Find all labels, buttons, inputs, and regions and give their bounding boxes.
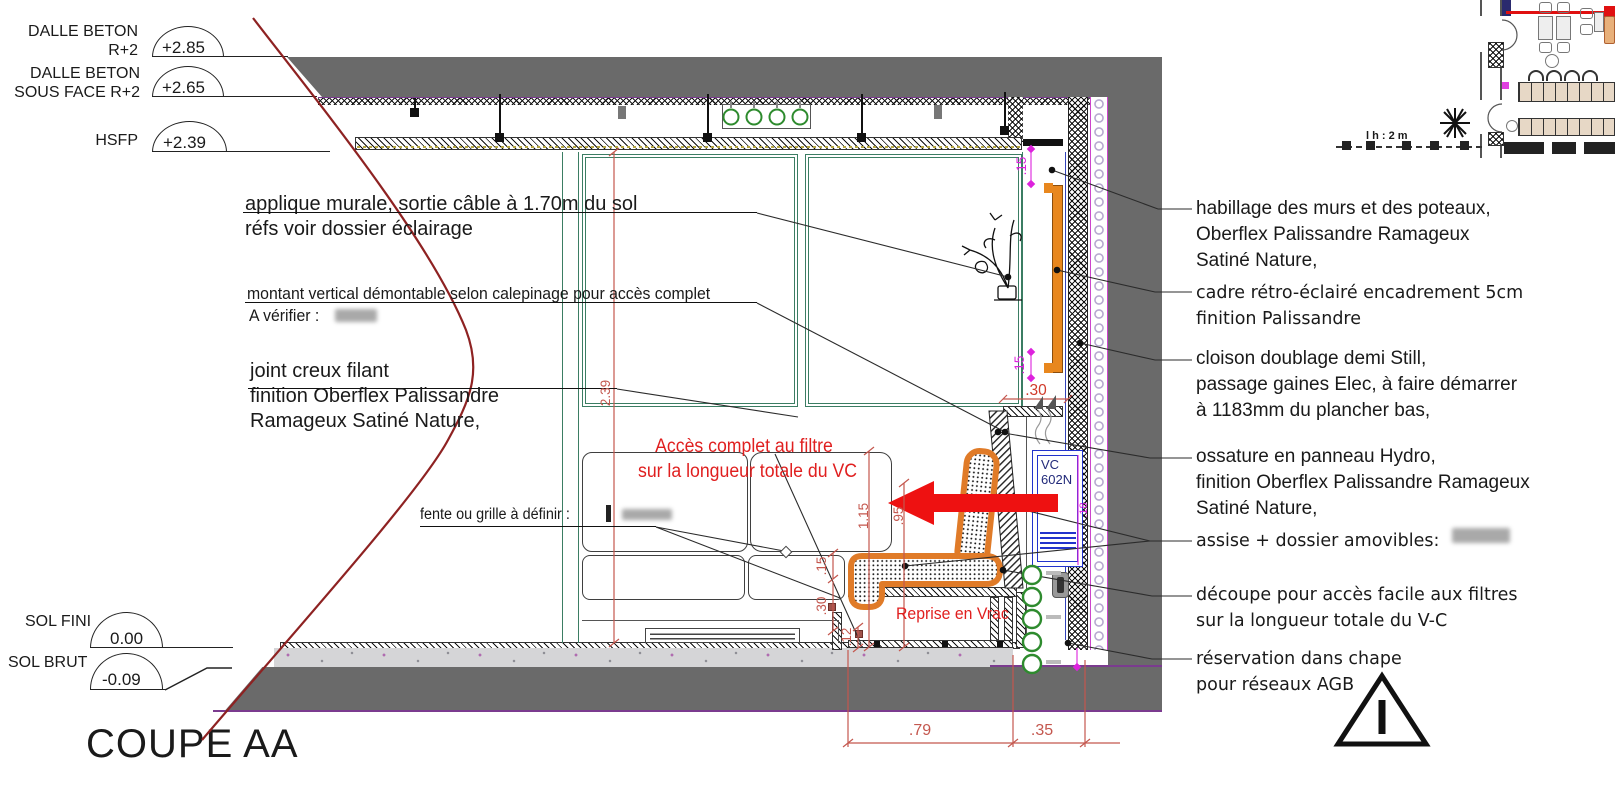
floor-slab: [220, 667, 1162, 712]
slab-recess-line: [990, 665, 1162, 667]
note-verifier: A vérifier :: [249, 306, 319, 326]
note-line: Oberflex Palissandre Ramageux: [1196, 222, 1491, 248]
level-line-hsfp: [152, 151, 330, 152]
inset-chair: [1580, 24, 1593, 35]
wall-line: [578, 152, 579, 643]
ceiling-hanger: [861, 94, 863, 135]
inset-plant-pot: [1604, 16, 1615, 44]
ceiling-hanger: [857, 133, 866, 142]
fixing-block: [828, 603, 836, 611]
redacted-text: [622, 509, 672, 520]
note-reservation: réservation dans chape pour réseaux AGB: [1196, 646, 1402, 698]
stud-line: [1026, 410, 1027, 648]
wall-stub-above-niche: [1008, 97, 1023, 142]
ventilation-duct-box: [722, 104, 811, 129]
seat-board: [848, 587, 1017, 597]
level-value: +2.65: [162, 78, 205, 98]
note-montant-line1: montant vertical démontable selon calepi…: [247, 284, 710, 304]
dim-wall-offset: .35: [1022, 722, 1062, 740]
backrest-cushion: [956, 450, 998, 567]
backrest-support: [989, 411, 1023, 588]
floor-level-label: SOL FINI: [25, 612, 91, 631]
backlit-frame-bracket: [1044, 183, 1053, 193]
level-line: SOUS FACE R+2: [0, 83, 140, 102]
fixing-square: [874, 641, 880, 647]
inset-round-table: [1545, 54, 1559, 68]
note-joint-line3: Ramageux Satiné Nature,: [250, 409, 480, 434]
bench-grille: [645, 628, 800, 643]
base-post: [1016, 592, 1026, 648]
plinth-line: [582, 620, 838, 621]
bench-front-panel: [582, 555, 745, 600]
level-line-265: [152, 96, 317, 97]
inset-banquette-row: [1518, 118, 1615, 136]
vc-label-line2: 602N: [1041, 472, 1072, 487]
note-fente: fente ou grille à définir :: [420, 506, 570, 524]
level-line-285: [152, 56, 288, 57]
redacted-text: [1452, 528, 1510, 543]
backlit-frame-bracket: [1044, 363, 1053, 373]
dim-plinth-height: .12: [839, 619, 853, 655]
note-line: sur la longueur totale du V-C: [1196, 608, 1518, 634]
dim-niche-depth: .30: [1018, 382, 1054, 400]
ceiling-hanger: [703, 133, 712, 142]
sol-brut-connector: [165, 668, 232, 690]
ceiling-hanger: [1000, 126, 1009, 135]
level-label: DALLE BETON R+2: [20, 22, 138, 60]
ceiling-hanger: [499, 94, 501, 135]
wall-insulation-honeycomb: [1090, 97, 1108, 650]
pipe-label-smudge: [1046, 660, 1061, 664]
ceiling-hanger: [495, 133, 504, 142]
level-value: +2.85: [162, 38, 205, 58]
coupe-aa-section-drawing: DALLE BETON R+2 +2.85 DALLE BETON SOUS F…: [0, 0, 1615, 788]
vc-label-line1: VC: [1041, 457, 1072, 472]
note-line: finition Palissandre: [1196, 306, 1523, 332]
note-line: cloison doublage demi Still,: [1196, 346, 1517, 372]
dim-vc-width: .18: [1078, 492, 1092, 528]
inset-wall-block: [1488, 132, 1504, 146]
note-line: Satiné Nature,: [1196, 496, 1530, 522]
note-applique-line2: réfs voir dossier éclairage: [245, 217, 473, 242]
ceiling-seal-line: [357, 146, 1020, 148]
inset-chair: [1539, 42, 1552, 53]
inset-table: [1556, 16, 1571, 40]
dim-panel-height: 2.39: [598, 375, 612, 411]
seat-cushion: [851, 556, 1000, 607]
floor-level-value: -0.09: [102, 670, 141, 690]
inset-wall-block: [1488, 42, 1504, 68]
inset-wall-notch: [1576, 142, 1584, 154]
backlit-frame-fixture: [1052, 185, 1063, 373]
note-line: réservation dans chape: [1196, 646, 1402, 672]
note-line: finition Oberflex Palissandre Ramageux: [1196, 470, 1530, 496]
page-title: COUPE AA: [86, 722, 299, 767]
filter-access-line1: Accès complet au filtre: [638, 434, 850, 459]
note-line: habillage des murs et des poteaux,: [1196, 196, 1491, 222]
redacted-text: [335, 309, 377, 322]
inset-post: [1366, 141, 1375, 150]
note-ossature: ossature en panneau Hydro, finition Ober…: [1196, 444, 1530, 522]
niche-sill: [1003, 406, 1063, 417]
note-cadre: cadre rétro-éclairé encadrement 5cm fini…: [1196, 280, 1523, 332]
right-wall: [1108, 96, 1162, 667]
vc-unit-label: VC 602N: [1041, 457, 1072, 487]
level-line: DALLE BETON: [0, 64, 140, 83]
inset-chairback: [1564, 70, 1580, 81]
level-line: R+2: [20, 41, 138, 60]
suspended-ceiling: [355, 137, 1022, 150]
wall-insulation-crosshatch: [1068, 97, 1088, 650]
inset-round-symbol: [1506, 120, 1518, 132]
floor-level-label: SOL BRUT: [8, 653, 87, 672]
inset-post: [1402, 141, 1411, 150]
note-reprise: Reprise en Vrac: [896, 604, 1009, 624]
base-plate: [848, 640, 1013, 648]
inset-banquette-row: [1518, 82, 1615, 102]
note-joint-line1: joint creux filant: [250, 359, 389, 384]
note-line: pour réseaux AGB: [1196, 672, 1402, 698]
note-underline: [420, 526, 656, 527]
wall-line: [562, 152, 563, 643]
fixing-square: [942, 641, 948, 647]
dim-seat-height: .95: [891, 498, 905, 534]
vc-coil: [1040, 532, 1076, 552]
pipe-fitting-core: [1057, 577, 1064, 593]
level-label: HSFP: [60, 131, 138, 150]
level-line: DALLE BETON: [20, 22, 138, 41]
level-value: +2.39: [163, 133, 206, 153]
dim-slot-gap: .15: [814, 548, 828, 584]
dim-niche-gap: .15: [1012, 347, 1026, 383]
inset-post: [1460, 141, 1469, 150]
note-applique-line1: applique murale, sortie câble à 1.70m du…: [245, 192, 637, 217]
inset-chair: [1557, 42, 1570, 53]
inset-post: [1430, 141, 1439, 150]
pipe-label-smudge: [1046, 615, 1061, 619]
note-cloison: cloison doublage demi Still, passage gai…: [1196, 346, 1517, 424]
note-joint-line2: finition Oberflex Palissandre: [250, 384, 499, 409]
note-filter-access: Accès complet au filtre sur la longueur …: [638, 434, 850, 484]
note-line: cadre rétro-éclairé encadrement 5cm: [1196, 280, 1523, 306]
note-habillage: habillage des murs et des poteaux, Oberf…: [1196, 196, 1491, 274]
note-assise: assise + dossier amovibles:: [1196, 528, 1439, 554]
note-line: ossature en panneau Hydro,: [1196, 444, 1530, 470]
fixing-square: [997, 641, 1003, 647]
ceiling-hanger: [1004, 92, 1006, 130]
bench-front-panel: [748, 555, 845, 600]
level-label: DALLE BETON SOUS FACE R+2: [0, 64, 140, 102]
sol-brut-line: [90, 689, 166, 690]
note-line: Satiné Nature,: [1196, 248, 1491, 274]
dim-base-height: .30: [814, 588, 828, 624]
dim-bench-depth: .79: [898, 722, 942, 740]
note-line: passage gaines Elec, à faire démarrer: [1196, 372, 1517, 398]
inset-chairback: [1528, 70, 1544, 81]
inset-chairback: [1582, 70, 1598, 81]
niche-lintel: [1023, 139, 1063, 146]
note-underline: [243, 212, 757, 213]
inset-chair: [1557, 2, 1570, 13]
inset-pink-mark: [1502, 82, 1509, 89]
inset-wall-gap: [1478, 100, 1504, 134]
inset-bottom-wall: [1504, 142, 1615, 154]
fixing-block: [855, 630, 863, 638]
plan-inset: l h : 2 m: [1330, 0, 1615, 160]
inset-post: [1342, 141, 1351, 150]
ceiling-hanger: [707, 94, 709, 135]
note-line: à 1183mm du plancher bas,: [1196, 398, 1517, 424]
sol-fini-line: [90, 647, 233, 648]
note-underline: [245, 302, 757, 303]
redacted-mark: [606, 505, 611, 522]
top-concrete-slab: [287, 57, 1162, 97]
dim-backrest-height: 1.15: [856, 498, 870, 534]
pipe-label-smudge: [1046, 571, 1061, 575]
floor-level-value: 0.00: [110, 629, 143, 649]
floor-screed: [274, 648, 1013, 667]
slab-bottom-line: [213, 710, 1162, 712]
inset-table: [1538, 16, 1553, 40]
inset-wall-notch: [1544, 142, 1552, 154]
note-line: découpe pour accès facile aux filtres: [1196, 582, 1518, 608]
inset-chair: [1539, 2, 1552, 13]
dim-ceiling-gap: .15: [1014, 148, 1028, 184]
inset-chairback: [1546, 70, 1562, 81]
ceiling-clip: [618, 106, 626, 119]
ceiling-clip: [934, 105, 942, 119]
inset-scale-note: l h : 2 m: [1366, 130, 1408, 142]
inset-chair: [1580, 8, 1593, 19]
wall-panel-right: [805, 154, 1022, 407]
inset-table: [1594, 12, 1604, 32]
filter-access-line2: sur la longueur totale du VC: [638, 459, 850, 484]
ceiling-hanger: [410, 108, 419, 117]
note-decoupe: découpe pour accès facile aux filtres su…: [1196, 582, 1518, 634]
